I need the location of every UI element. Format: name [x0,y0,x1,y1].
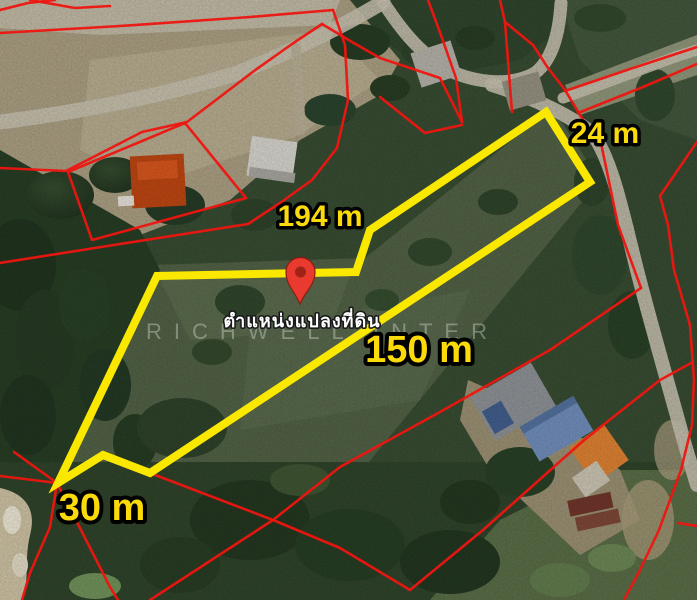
pin-caption: ตำแหน่งแปลงที่ดิน [223,308,380,332]
dimension-label-south: 150 m [365,329,473,371]
land-plot-map: RICHWELL INTER 194 m 24 m 150 m 30 m ตำแ… [0,0,697,600]
dimension-label-north: 194 m [277,200,362,233]
dimension-label-west: 30 m [59,487,146,529]
dimension-label-east: 24 m [571,117,639,150]
satellite-map-image: RICHWELL INTER 194 m 24 m 150 m 30 m ตำแ… [0,0,697,600]
